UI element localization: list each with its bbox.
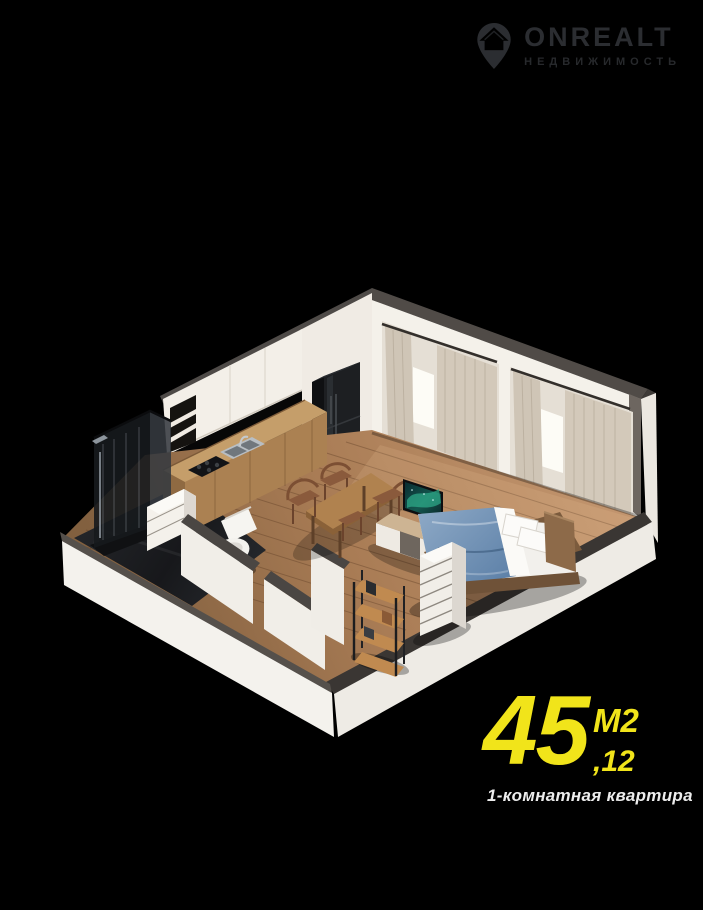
location-pin-house-icon	[476, 22, 512, 70]
area-unit: М2	[593, 704, 639, 737]
curtain	[437, 345, 497, 472]
area-decimal: ,12	[593, 747, 639, 777]
poster: ONREALT НЕДВИЖИМОСТЬ	[0, 0, 703, 910]
curtain	[385, 325, 414, 450]
brand-subtitle: НЕДВИЖИМОСТЬ	[524, 57, 681, 68]
area-block: 45 М2 ,12 1-комнатная квартира	[483, 690, 693, 806]
apartment-type-caption: 1-комнатная квартира	[483, 786, 693, 806]
curtain	[513, 371, 543, 494]
area-value: 45 М2 ,12	[483, 690, 693, 777]
area-integer: 45	[483, 690, 588, 770]
brand-words: ONREALT НЕДВИЖИМОСТЬ	[524, 24, 681, 68]
brand-name: ONREALT	[524, 24, 681, 51]
brand-logo: ONREALT НЕДВИЖИМОСТЬ	[476, 22, 681, 70]
